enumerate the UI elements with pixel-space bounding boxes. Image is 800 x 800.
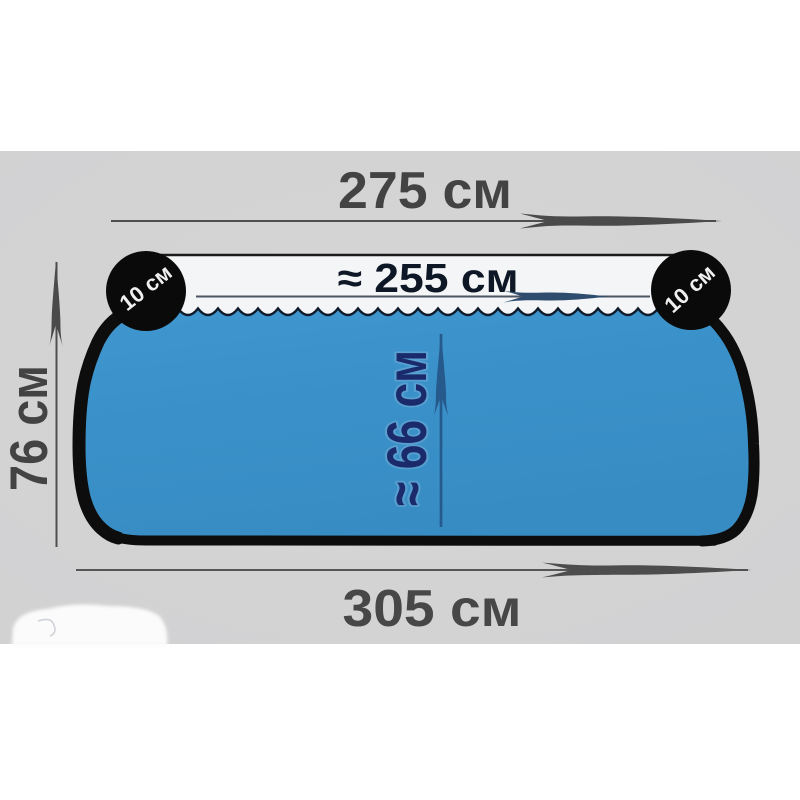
svg-text:≈ 66 см: ≈ 66 см [375,350,438,506]
svg-text:≈ 255 см: ≈ 255 см [338,255,519,301]
svg-text:275 см: 275 см [338,162,512,220]
svg-text:305 см: 305 см [343,580,522,638]
svg-text:76 см: 76 см [0,365,59,491]
